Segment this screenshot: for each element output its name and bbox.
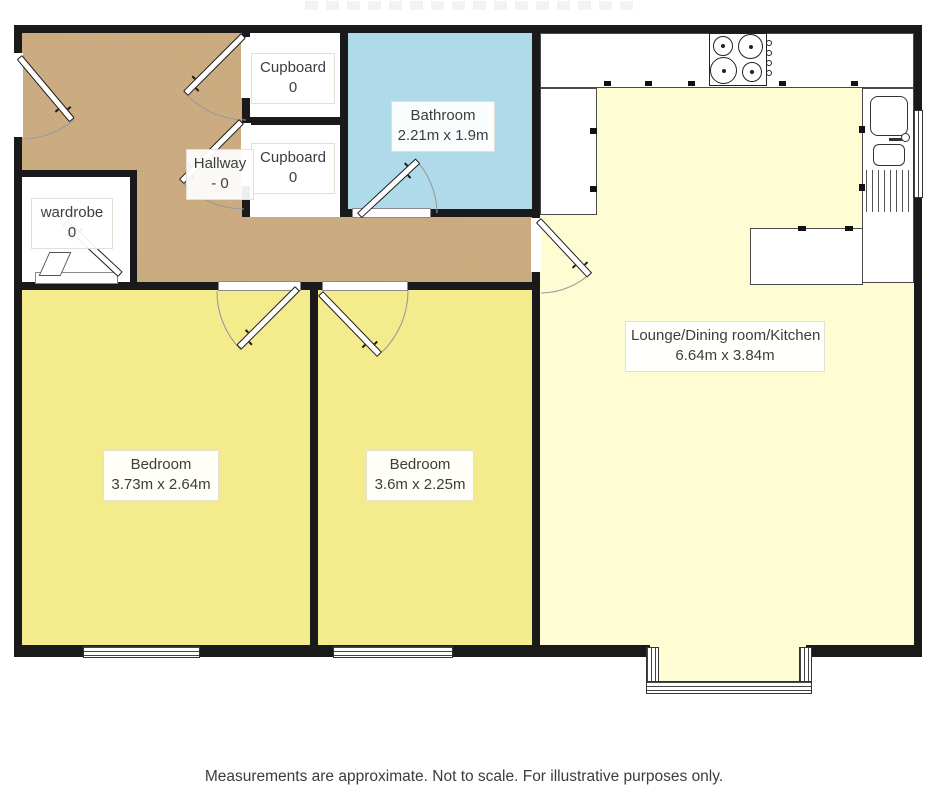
bay-window-sill <box>646 681 812 694</box>
counter-seam-tick <box>845 226 853 231</box>
counter-seam-tick <box>688 81 695 86</box>
bay-window-floor <box>650 645 806 684</box>
room-name: Lounge/Dining room/Kitchen <box>631 326 819 346</box>
room-size: - 0 <box>192 174 248 194</box>
hob-burner-icon <box>713 36 733 56</box>
wall-bottom-right <box>806 645 922 657</box>
bedroom-left-window <box>83 646 200 658</box>
counter-seam-tick <box>798 226 806 231</box>
room-name: Hallway <box>192 154 248 174</box>
label-cupboard-top: Cupboard 0 <box>251 53 335 104</box>
hob-knob-icon <box>766 50 772 56</box>
wall-bathroom-left <box>340 25 348 217</box>
hob-knob-icon <box>766 40 772 46</box>
counter-seam-tick <box>851 81 858 86</box>
counter-seam-tick <box>645 81 652 86</box>
bedroom-center-threshold <box>322 281 408 291</box>
wall-cupboard-divider <box>242 117 345 125</box>
counter-seam-tick <box>859 126 865 133</box>
label-cupboard-bottom: Cupboard 0 <box>251 143 335 194</box>
sink-basin-large-icon <box>870 96 908 136</box>
room-name: Bathroom <box>397 106 489 126</box>
room-size: 0 <box>257 168 329 188</box>
room-name: Cupboard <box>257 148 329 168</box>
room-hallway-lower <box>242 215 540 282</box>
counter-seam-tick <box>779 81 786 86</box>
wall-wardrobe-top <box>22 170 137 177</box>
hob-burner-icon <box>710 57 737 84</box>
room-size: 3.6m x 2.25m <box>372 475 468 495</box>
cupboard-top-opening <box>241 37 251 98</box>
room-size: 0 <box>257 78 329 98</box>
room-size: 3.73m x 2.64m <box>109 475 213 495</box>
label-wardrobe: wardrobe 0 <box>31 198 113 249</box>
counter-seam-tick <box>604 81 611 86</box>
room-name: Bedroom <box>109 455 213 475</box>
room-name: Cupboard <box>257 58 329 78</box>
floor-plan-page: Cupboard 0 Cupboard 0 Bathroom 2.21m x 1… <box>0 0 928 801</box>
label-lounge-kitchen: Lounge/Dining room/Kitchen 6.64m x 3.84m <box>625 321 825 372</box>
wall-lounge-left <box>532 25 540 645</box>
hob-knob-icon <box>766 70 772 76</box>
hob-burner-icon <box>738 34 763 59</box>
bedroom-left-threshold <box>218 281 301 291</box>
counter-seam-tick <box>590 128 597 134</box>
wall-top <box>14 25 922 33</box>
wall-bedroom-divider <box>310 282 318 657</box>
label-bedroom-center: Bedroom 3.6m x 2.25m <box>366 450 474 501</box>
cropped-watermark <box>305 1 635 10</box>
label-bathroom: Bathroom 2.21m x 1.9m <box>391 101 495 152</box>
faucet-icon <box>901 133 910 142</box>
room-size: 6.64m x 3.84m <box>631 346 819 366</box>
hob-knob-icon <box>766 60 772 66</box>
counter-seam-tick <box>859 184 865 191</box>
label-bedroom-left: Bedroom 3.73m x 2.64m <box>103 450 219 501</box>
room-name: Bedroom <box>372 455 468 475</box>
sink-basin-small-icon <box>873 144 905 166</box>
room-size: 0 <box>37 223 107 243</box>
wall-wardrobe-right <box>130 170 137 290</box>
drainer-icon <box>866 170 911 212</box>
label-hallway: Hallway - 0 <box>186 149 254 200</box>
island-counter <box>750 228 863 285</box>
room-name: wardrobe <box>37 203 107 223</box>
kitchen-side-window <box>913 110 923 198</box>
disclaimer-text: Measurements are approximate. Not to sca… <box>0 768 928 786</box>
hob-burner-icon <box>742 62 762 82</box>
bedroom-center-window <box>333 646 453 658</box>
room-size: 2.21m x 1.9m <box>397 126 489 146</box>
counter-seam-tick <box>590 186 597 192</box>
kitchen-counter-left <box>540 88 597 215</box>
